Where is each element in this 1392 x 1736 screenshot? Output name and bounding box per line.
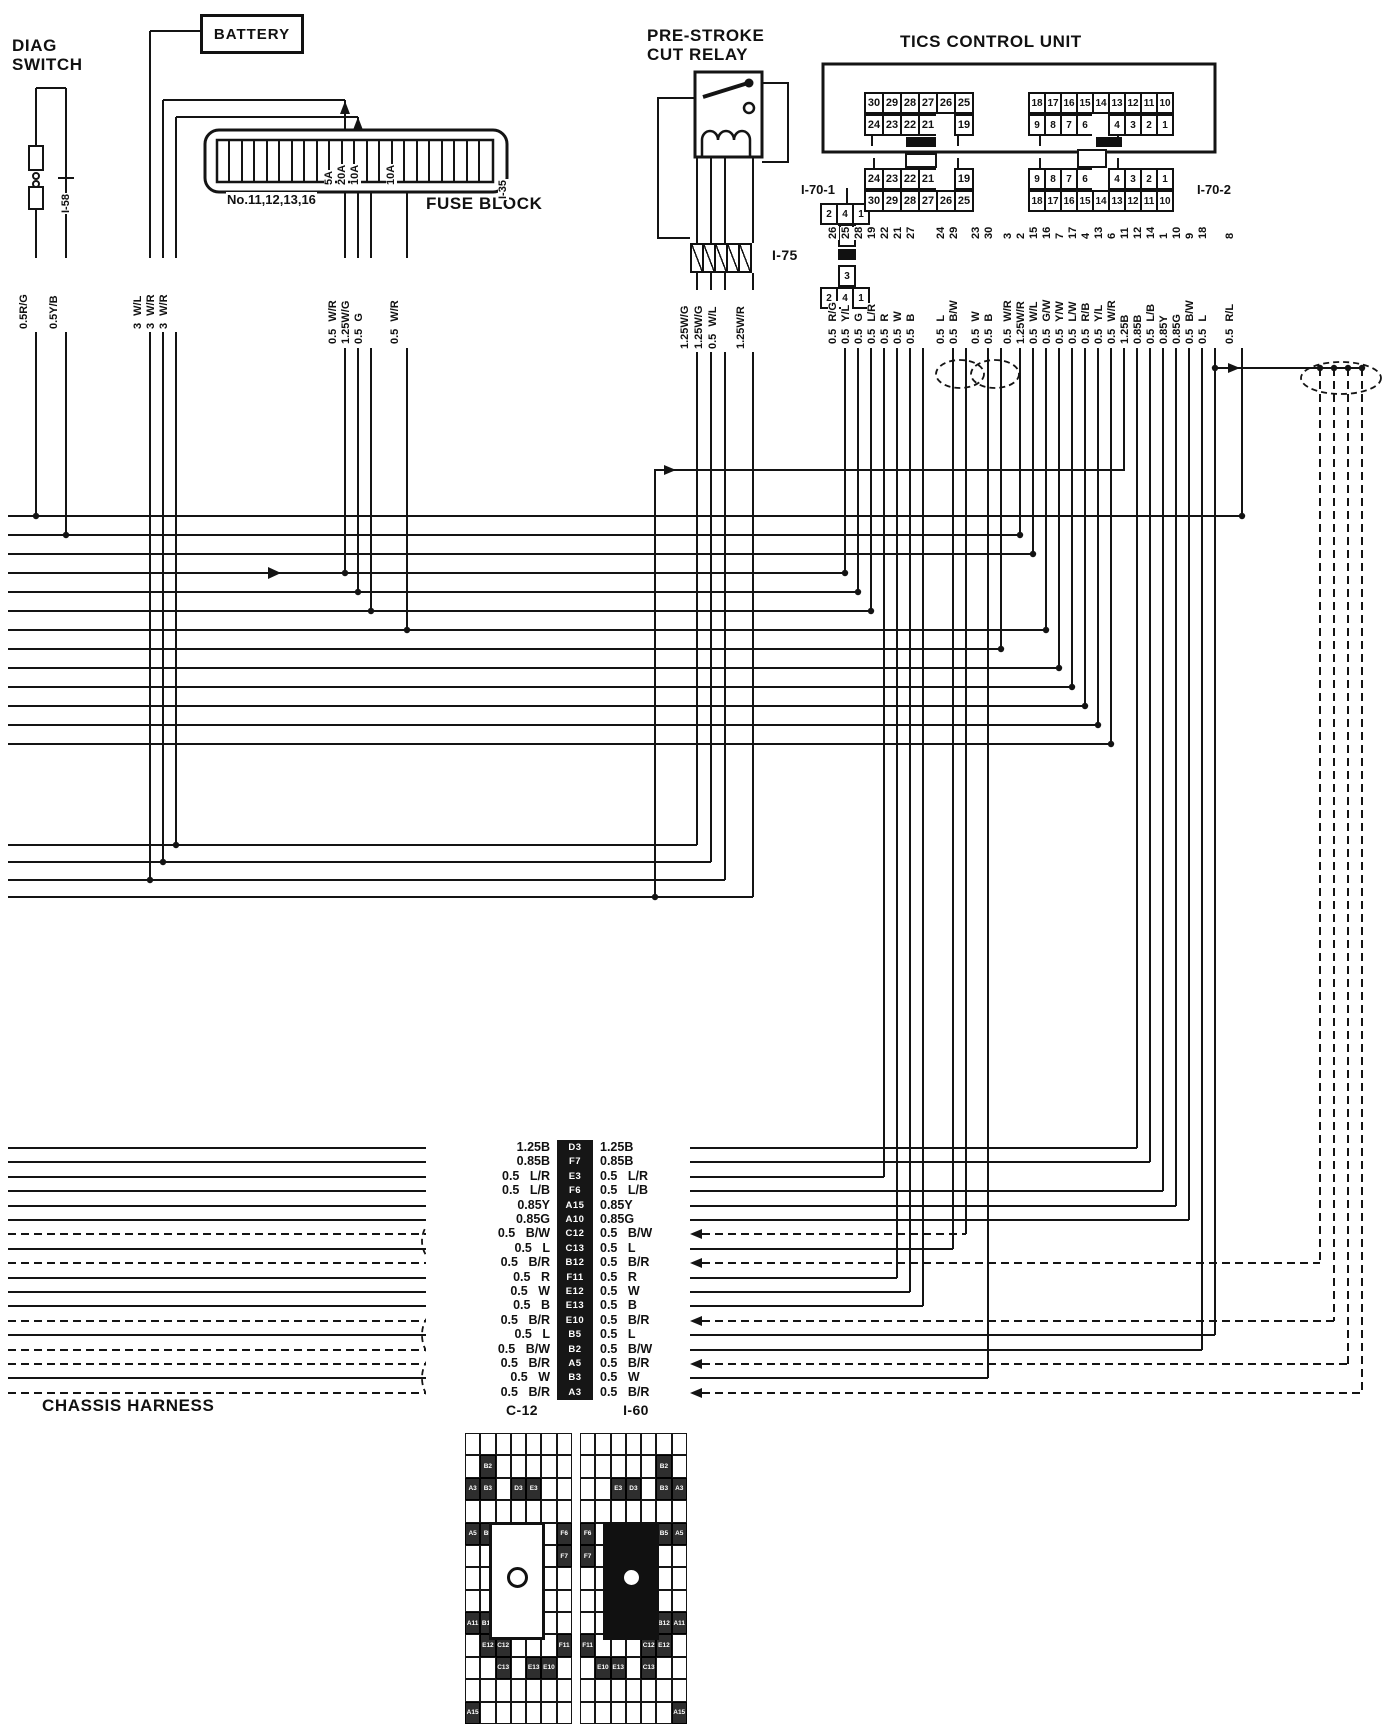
connector-cavity: [641, 1679, 656, 1701]
connector-cavity-E3: E3: [611, 1478, 626, 1500]
junction-left-wire-label: 0.5 B/R: [426, 1385, 550, 1401]
connector-cavity-B2: B2: [480, 1455, 495, 1477]
connector-cavity: [626, 1500, 641, 1522]
wire-label: 0.5R/G: [19, 293, 30, 330]
pin-number: 24: [936, 226, 947, 240]
relay-wires: [658, 83, 847, 897]
pin-number: 2: [1016, 232, 1027, 240]
wire-color-label: 1.25W/R: [1016, 300, 1027, 345]
connector-cavity: [511, 1433, 526, 1455]
connector-cavity-E13: E13: [526, 1657, 541, 1679]
connector-cavity: [580, 1478, 595, 1500]
pin-cell: 22: [900, 168, 920, 190]
pin-cell: 29: [882, 92, 902, 114]
wire-label: 0.5 W/R: [390, 299, 401, 345]
connector-cavity: [580, 1500, 595, 1522]
battery-box: BATTERY: [200, 14, 304, 54]
fuse-note: No.11,12,13,16: [226, 192, 317, 207]
junction-left-wire-label: 0.5 B/W: [426, 1226, 550, 1242]
i60-key-area: [603, 1522, 659, 1640]
connector-cavity: [557, 1657, 572, 1679]
tics-key-right: [1096, 137, 1122, 147]
connector-cavity: [465, 1567, 480, 1589]
fuse-rating: 20A: [337, 164, 348, 186]
connector-cavity: [465, 1657, 480, 1679]
pin-cell: [936, 114, 956, 136]
wire-label: 3 W/R: [146, 293, 157, 330]
connector-cavity-E10: E10: [595, 1657, 610, 1679]
connector-cavity: [511, 1455, 526, 1477]
fuse-rating: 10A: [386, 164, 397, 186]
connector-cavity: [511, 1657, 526, 1679]
junction-right-wire-label: 0.5 W: [600, 1370, 690, 1386]
pin-cell: 24: [864, 114, 884, 136]
connector-cavity: [557, 1478, 572, 1500]
connector-cavity: [526, 1455, 541, 1477]
connector-cavity: [480, 1657, 495, 1679]
connector-cavity: [480, 1679, 495, 1701]
wire-color-label: 0.85Y: [1159, 314, 1170, 345]
pin-number: 27: [906, 226, 917, 240]
connector-cavity: [672, 1433, 687, 1455]
wire-label: 1.25W/G: [341, 300, 352, 345]
junction-left-wire-label: 0.5 W: [426, 1370, 550, 1386]
connector-cavity-D3: D3: [626, 1478, 641, 1500]
pin-number: 29: [949, 226, 960, 240]
junction-left-wire-label: 0.85B: [426, 1154, 550, 1170]
wire-color-label: 0.5 R/L: [1225, 303, 1236, 345]
junction-right-wire-label: 0.5 L/B: [600, 1183, 690, 1199]
junction-terminal-code: A10: [557, 1212, 593, 1227]
connector-cavity-E3: E3: [526, 1478, 541, 1500]
connector-cavity-A5: A5: [465, 1523, 480, 1545]
connector-cavity: [580, 1433, 595, 1455]
connector-cavity: [672, 1634, 687, 1656]
wire-label: 0.5 W/R: [328, 299, 339, 345]
wire-color-label: 0.5 Y/L: [1094, 304, 1105, 345]
junction-left-wire-label: 0.5 B: [426, 1298, 550, 1314]
connector-cavity-A15: A15: [465, 1702, 480, 1724]
pin-cell: 23: [882, 168, 902, 190]
wire-color-label: 0.85B: [1133, 314, 1144, 345]
pin-number: 21: [893, 226, 904, 240]
connector-cavity: [526, 1702, 541, 1724]
pin-number: 25: [841, 226, 852, 240]
connector-cavity: [672, 1567, 687, 1589]
pin-cell: 1: [1156, 114, 1174, 136]
wire-color-label: 0.5 L: [1198, 314, 1209, 345]
tics-unit-left-row1: 302928272625: [864, 92, 974, 114]
wire-color-label: 0.5 B: [984, 313, 995, 345]
pin-number: 17: [1068, 226, 1079, 240]
wire-color-label: 0.5 R/G: [828, 301, 839, 345]
junction-right-wire-label: 0.5 B/R: [600, 1385, 690, 1401]
wire-color-label: 0.5 W/R: [1003, 299, 1014, 345]
wire-color-label: 0.5 Y/L: [841, 304, 852, 345]
wire-color-label: 0.5 R/B: [1081, 302, 1092, 345]
connector-cavity: [672, 1455, 687, 1477]
junction-terminal-code: B3: [557, 1370, 593, 1385]
pin-cell: 23: [882, 114, 902, 136]
wire-color-label: 0.5 L/W: [1068, 300, 1079, 345]
pin-cell: 10: [1156, 92, 1174, 114]
pin-cell: 30: [864, 190, 884, 212]
junction-right-wire-label: 0.5 L: [600, 1327, 690, 1343]
junction-right-wire-label: 0.85B: [600, 1154, 690, 1170]
junction-terminal-code: C13: [557, 1241, 593, 1256]
wire-color-label: 0.5 B/W: [949, 299, 960, 345]
connector-cavity: [557, 1612, 572, 1634]
connector-cavity: [541, 1455, 556, 1477]
pin-number: 22: [880, 226, 891, 240]
connector-cavity: [465, 1500, 480, 1522]
connector-cavity: [557, 1433, 572, 1455]
wire-color-label: 1.25B: [1120, 314, 1131, 345]
junction-terminal-code: B12: [557, 1255, 593, 1270]
wire-color-label: 0.85G: [1172, 313, 1183, 345]
wire-color-label: 0.5 W: [893, 310, 904, 345]
i75-pin-cell: [738, 243, 752, 273]
connector-cavity: [496, 1702, 511, 1724]
pin-number: 13: [1094, 226, 1105, 240]
diag-switch-title: DIAG SWITCH: [10, 36, 85, 74]
wire-label: 3 W/L: [133, 295, 144, 330]
connector-cavity: [480, 1702, 495, 1724]
c12-label: C-12: [492, 1402, 552, 1418]
pin-number: 30: [984, 226, 995, 240]
connector-cavity: [611, 1500, 626, 1522]
cross-connector-bottom-above: 3: [838, 265, 856, 287]
junction-terminal-code: C12: [557, 1226, 593, 1241]
connector-cavity: [580, 1612, 595, 1634]
pin-cell: 10: [1156, 190, 1174, 212]
connector-cavity-A3: A3: [465, 1478, 480, 1500]
pin-number: 12: [1133, 226, 1144, 240]
pin-number: 14: [1146, 226, 1157, 240]
connector-cavity-B3: B3: [656, 1478, 671, 1500]
connector-cavity: [465, 1634, 480, 1656]
connector-cavity: [672, 1679, 687, 1701]
pin-cell: 26: [936, 92, 956, 114]
junction-terminal-code: A3: [557, 1385, 593, 1400]
c12-key-area: [489, 1522, 545, 1640]
connector-cavity-F7: F7: [580, 1545, 595, 1567]
connector-cavity: [611, 1702, 626, 1724]
junction-terminal-code: F11: [557, 1270, 593, 1285]
connector-cavity: [656, 1500, 671, 1522]
connector-cavity-C13: C13: [496, 1657, 511, 1679]
pin-number: 19: [867, 226, 878, 240]
pin-number: 7: [1055, 232, 1066, 240]
connector-cavity: [480, 1500, 495, 1522]
i70-2-row1: 98764321: [1028, 168, 1174, 190]
wire-label: 3 W/R: [159, 293, 170, 330]
connector-cavity: [580, 1590, 595, 1612]
connector-cavity-A11: A11: [672, 1612, 687, 1634]
pin-number: 26: [828, 226, 839, 240]
cross-connector-top-row: 241: [820, 203, 870, 225]
pin-cell: 29: [882, 190, 902, 212]
connector-cavity: [595, 1433, 610, 1455]
pin-number: 18: [1198, 226, 1209, 240]
junction-right-wire-label: 0.5 B/W: [600, 1226, 690, 1242]
relay-title: PRE-STROKE CUT RELAY: [645, 26, 766, 64]
connector-cavity-B3: B3: [480, 1478, 495, 1500]
pin-cell: 1: [1156, 168, 1174, 190]
i70-2-label: I-70-2: [1196, 182, 1232, 197]
connector-cavity-F6: F6: [557, 1523, 572, 1545]
connector-cavity-B2: B2: [656, 1455, 671, 1477]
junction-terminal-code: E10: [557, 1313, 593, 1328]
i75-connector: [690, 243, 752, 273]
pin-cell: 25: [954, 92, 974, 114]
cross-connector-key: [838, 249, 856, 260]
pin-cell: 25: [954, 190, 974, 212]
connector-cavity: [465, 1455, 480, 1477]
connector-cavity-D3: D3: [511, 1478, 526, 1500]
connector-cavity: [580, 1455, 595, 1477]
connector-cavity: [656, 1679, 671, 1701]
pin-cell: 21: [918, 168, 938, 190]
i58-connector-label: I-58: [61, 193, 72, 214]
connector-cavity: [511, 1679, 526, 1701]
connector-cavity: [641, 1500, 656, 1522]
pin-number: 1: [1159, 232, 1170, 240]
junction-terminal-code: B5: [557, 1327, 593, 1342]
junction-terminal-code: F6: [557, 1183, 593, 1198]
c12-key-hole: [507, 1567, 528, 1588]
wire-color-label: 0.5 W/R: [1107, 299, 1118, 345]
pin-cell: 26: [936, 190, 956, 212]
connector-cavity: [465, 1679, 480, 1701]
pin-number: 28: [854, 226, 865, 240]
junction-left-wire-label: 0.5 B/R: [426, 1255, 550, 1271]
connector-cavity: [595, 1478, 610, 1500]
connector-cavity: [672, 1500, 687, 1522]
connector-cavity: [526, 1433, 541, 1455]
connector-cavity-F11: F11: [557, 1634, 572, 1656]
tics-unit-right-row1: 181716151413121110: [1028, 92, 1174, 114]
junction-terminal-code: E12: [557, 1284, 593, 1299]
junction-terminal-code: F7: [557, 1154, 593, 1169]
i60-key-hole: [624, 1570, 639, 1585]
connector-cavity: [511, 1702, 526, 1724]
connector-cavity: [595, 1679, 610, 1701]
connector-cavity: [496, 1433, 511, 1455]
connector-cavity: [465, 1545, 480, 1567]
connector-cavity: [656, 1433, 671, 1455]
connector-cavity-E13: E13: [611, 1657, 626, 1679]
connector-cavity: [480, 1433, 495, 1455]
i70-1-row2: 302928272625: [864, 190, 974, 212]
pin-number: 9: [1185, 232, 1196, 240]
connector-cavity-A3: A3: [672, 1478, 687, 1500]
connector-cavity: [626, 1657, 641, 1679]
connector-cavity: [465, 1590, 480, 1612]
pin-cell: 19: [954, 168, 974, 190]
pin-number: 3: [1003, 232, 1014, 240]
connector-cavity: [595, 1455, 610, 1477]
connector-cavity: [526, 1679, 541, 1701]
connector-cavity: [496, 1500, 511, 1522]
connector-cavity: [541, 1679, 556, 1701]
wire-label: 1.25W/G: [694, 305, 705, 350]
wire-color-label: 0.5 G/W: [1042, 299, 1053, 345]
connector-cavity: [611, 1433, 626, 1455]
connector-cavity: [496, 1478, 511, 1500]
junction-right-wire-label: 0.5 B/R: [600, 1255, 690, 1271]
i70-2-row2: 181716151413121110: [1028, 190, 1174, 212]
pin-number: 6: [1107, 232, 1118, 240]
junction-left-wire-label: 0.5 L/B: [426, 1183, 550, 1199]
harness-rows-left-shielded: [8, 1234, 452, 1393]
connector-cavity-F11: F11: [580, 1634, 595, 1656]
fuse-rating: 5A: [324, 170, 335, 186]
connector-cavity: [541, 1702, 556, 1724]
connector-cavity: [580, 1679, 595, 1701]
connector-cavity-E10: E10: [541, 1657, 556, 1679]
tics-pin-wires: [655, 348, 1362, 1378]
connector-cavity: [496, 1679, 511, 1701]
connector-cavity: [656, 1657, 671, 1679]
junction-terminal-code: B2: [557, 1342, 593, 1357]
pin-cell: [936, 168, 956, 190]
junction-terminal-code: E3: [557, 1169, 593, 1184]
i70-1-label: I-70-1: [800, 182, 836, 197]
wire-color-label: 0.5 Y/W: [1055, 300, 1066, 345]
wire-color-label: 0.5 G: [854, 312, 865, 345]
wire-label: 0.5 W/L: [708, 305, 719, 350]
connector-cavity: [557, 1567, 572, 1589]
connector-cavity: [672, 1657, 687, 1679]
pin-cell: 22: [900, 114, 920, 136]
connector-cavity: [595, 1500, 610, 1522]
tics-title: TICS CONTROL UNIT: [898, 32, 1084, 51]
connector-cavity-F6: F6: [580, 1523, 595, 1545]
i60-label: I-60: [606, 1402, 666, 1418]
wire-color-label: 0.5 W: [971, 310, 982, 345]
connector-cavity: [557, 1702, 572, 1724]
pin-cell: 19: [954, 114, 974, 136]
connector-cavity: [496, 1455, 511, 1477]
junction-terminal-code: E13: [557, 1298, 593, 1313]
wire-label: 0.5Y/B: [49, 294, 60, 330]
pin-number: 4: [1081, 232, 1092, 240]
bus-lines: [8, 516, 1242, 897]
pin-cell: 21: [918, 114, 938, 136]
junction-left-wire-label: 0.5 L: [426, 1327, 550, 1343]
connector-cavity: [641, 1478, 656, 1500]
wire-label: 0.5 G: [354, 312, 365, 345]
tics-unit-right-row2: 98764321: [1028, 114, 1174, 136]
pin-cell: 27: [918, 190, 938, 212]
connector-cavity: [541, 1500, 556, 1522]
connector-cavity: [672, 1590, 687, 1612]
connector-cavity: [641, 1702, 656, 1724]
connector-cavity: [557, 1679, 572, 1701]
connector-cavity: [626, 1455, 641, 1477]
relay-contact-open: [744, 103, 754, 113]
battery-label: BATTERY: [214, 26, 290, 43]
connector-cavity-A11: A11: [465, 1612, 480, 1634]
i75-label: I-75: [770, 247, 800, 263]
chassis-harness-label: CHASSIS HARNESS: [40, 1396, 216, 1415]
connector-cavity: [541, 1433, 556, 1455]
junction-right-wire-label: 0.5 B: [600, 1298, 690, 1314]
connector-cavity: [557, 1590, 572, 1612]
wire-color-label: 0.5 R: [880, 313, 891, 345]
fuse-rating: 10A: [350, 164, 361, 186]
connector-cavity: [626, 1679, 641, 1701]
tics-key-left: [906, 137, 936, 147]
pin-cell: 3: [838, 265, 856, 287]
i70-1-row1: 2423222119: [864, 168, 974, 190]
connector-cavity-F7: F7: [557, 1545, 572, 1567]
connector-cavity: [611, 1679, 626, 1701]
pin-cell: 28: [900, 92, 920, 114]
pin-cell: 30: [864, 92, 884, 114]
pin-number: 23: [971, 226, 982, 240]
connector-cavity: [557, 1500, 572, 1522]
connector-cavity: [580, 1657, 595, 1679]
pin-number: 15: [1029, 226, 1040, 240]
wire-color-label: 0.5 L/B: [1146, 303, 1157, 345]
connector-cavity: [511, 1500, 526, 1522]
junction-terminal-code: D3: [557, 1140, 593, 1155]
connector-cavity: [541, 1478, 556, 1500]
connector-cavity-C13: C13: [641, 1657, 656, 1679]
connector-cavity-A5: A5: [672, 1523, 687, 1545]
connector-cavity: [526, 1500, 541, 1522]
pin-number: 16: [1042, 226, 1053, 240]
wire-color-label: 0.5 L: [936, 314, 947, 345]
wire-color-label: 0.5 B: [906, 313, 917, 345]
wire-label: 1.25W/G: [680, 305, 691, 350]
connector-cavity: [595, 1702, 610, 1724]
wire-color-label: 0.5 B/W: [1185, 299, 1196, 345]
connector-cavity-A15: A15: [672, 1702, 687, 1724]
connector-cavity: [641, 1455, 656, 1477]
connector-cavity: [580, 1702, 595, 1724]
connector-cavity: [557, 1455, 572, 1477]
diag-switch-symbol: [29, 146, 43, 170]
connector-cavity: [656, 1702, 671, 1724]
pin-number: 11: [1120, 226, 1131, 240]
junction-terminal-code: A5: [557, 1356, 593, 1371]
pin-cell: 24: [864, 168, 884, 190]
wire-label: 1.25W/R: [736, 305, 747, 350]
connector-cavity: [672, 1545, 687, 1567]
tics-unit-left-row2: 2423222119: [864, 114, 974, 136]
i35-connector-label: I-35: [498, 179, 509, 200]
connector-cavity: [626, 1433, 641, 1455]
fuse-block-label: FUSE BLOCK: [424, 194, 545, 213]
wire-color-label: 0.5 L/R: [867, 303, 878, 345]
connector-cavity: [611, 1455, 626, 1477]
pin-cell: 27: [918, 92, 938, 114]
pin-number: 8: [1225, 232, 1236, 240]
junction-terminal-code: A15: [557, 1198, 593, 1213]
connector-cavity: [641, 1433, 656, 1455]
connector-cavity: [626, 1702, 641, 1724]
wire-color-label: 0.5 W/L: [1029, 300, 1040, 345]
connector-cavity: [465, 1433, 480, 1455]
connector-cavity: [580, 1567, 595, 1589]
pin-number: 10: [1172, 226, 1183, 240]
pin-cell: 28: [900, 190, 920, 212]
wiring-diagram-page: DIAG SWITCH BATTERY PRE-STROKE CUT RELAY…: [0, 0, 1392, 1736]
